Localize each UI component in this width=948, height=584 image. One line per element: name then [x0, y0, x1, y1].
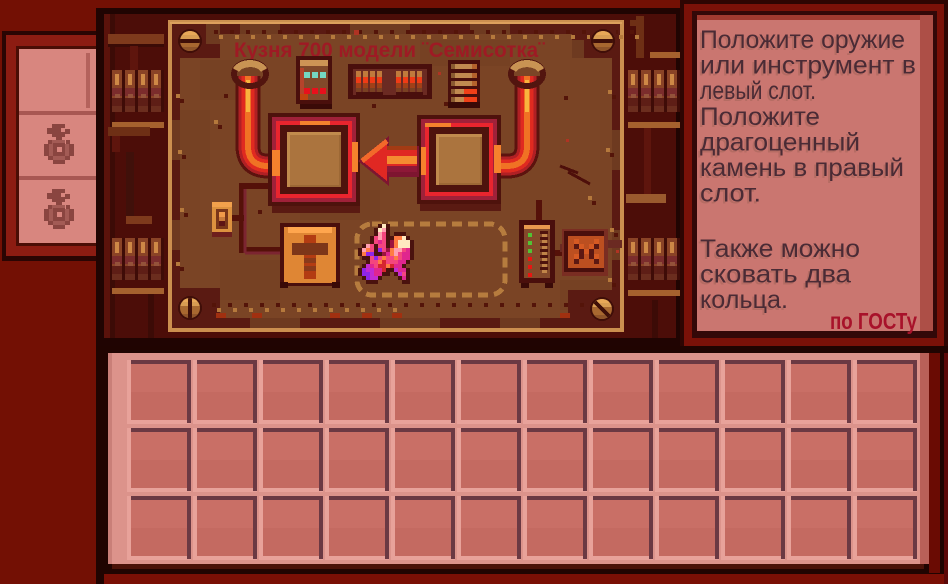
svg-text:или инструмент в: или инструмент в — [700, 52, 916, 80]
svg-text:кольца.: кольца. — [700, 286, 788, 314]
svg-text:сковать два: сковать два — [700, 261, 851, 289]
svg-text:левый слот.: левый слот. — [700, 77, 816, 105]
svg-text:Положите: Положите — [700, 103, 820, 131]
svg-text:Также можно: Также можно — [700, 235, 860, 263]
svg-text:Положите оружие: Положите оружие — [700, 26, 905, 54]
svg-text:камень в правый: камень в правый — [700, 154, 904, 182]
svg-text:Кузня 700 модели ¨Семисотка¨: Кузня 700 модели ¨Семисотка¨ — [234, 39, 545, 62]
svg-text:драгоценный: драгоценный — [700, 128, 860, 156]
svg-text:по ГОСТу: по ГОСТу — [830, 308, 917, 334]
svg-text:слот.: слот. — [700, 180, 761, 208]
